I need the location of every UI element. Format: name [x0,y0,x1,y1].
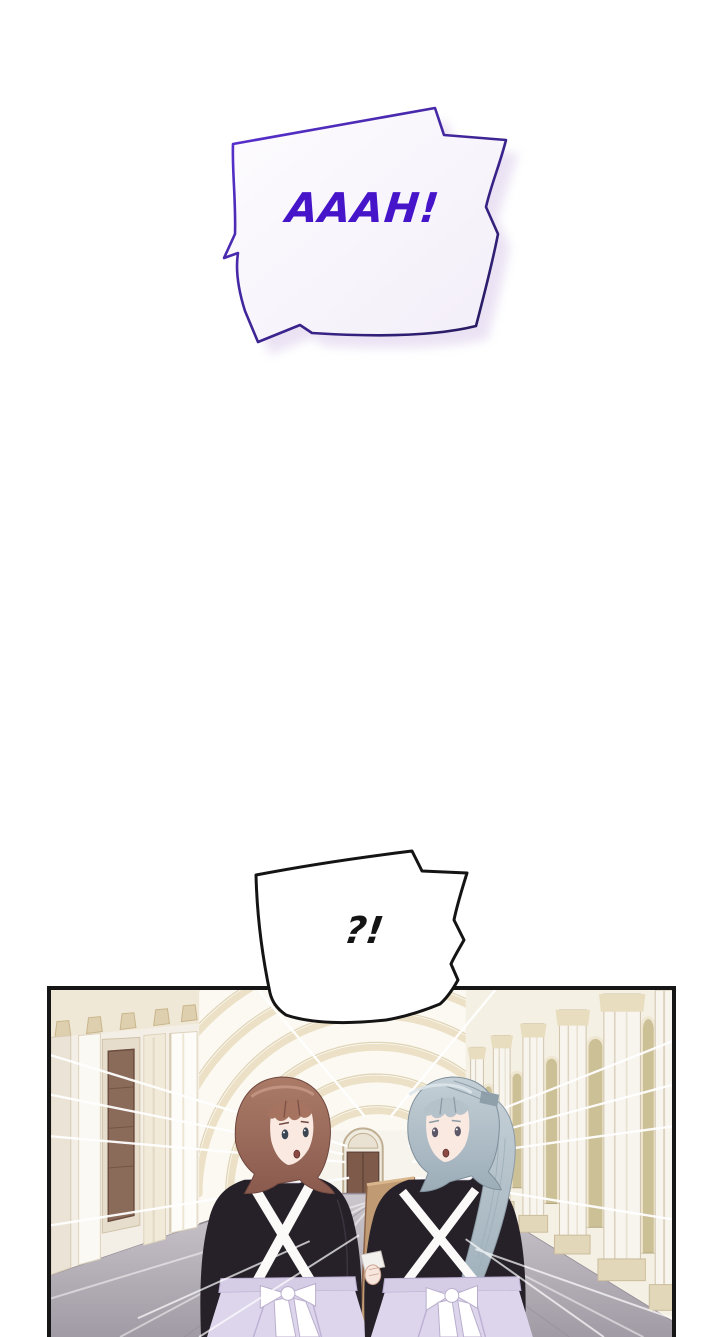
surprise-text: ?! [245,909,483,952]
shout-text: AAAH! [190,184,535,232]
corridor-illustration [51,990,672,1337]
column [555,1010,591,1254]
column [598,994,645,1281]
comic-page: AAAH! [0,0,720,1337]
surprise-speech-bubble: ?! [248,843,480,1039]
shout-speech-bubble: AAAH! [193,88,533,364]
column [519,1024,548,1233]
left-wall [51,990,199,1275]
